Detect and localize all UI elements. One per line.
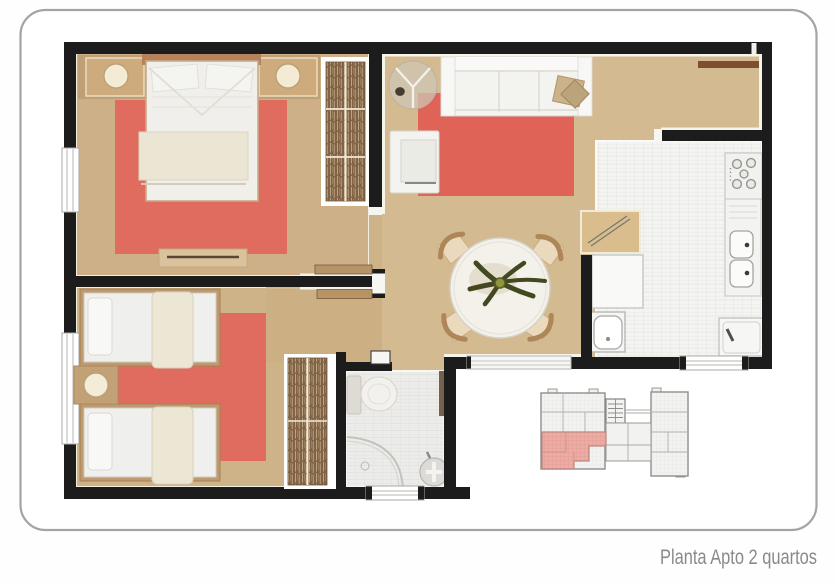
svg-text:Planta Apto 2 quartos: Planta Apto 2 quartos: [660, 546, 817, 569]
